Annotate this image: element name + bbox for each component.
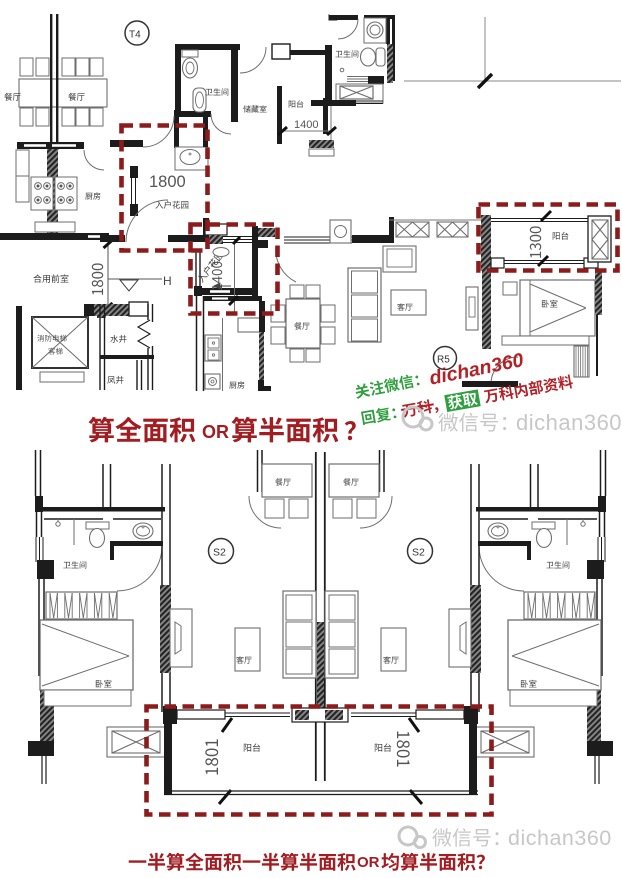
svg-text:1800: 1800	[149, 173, 186, 191]
svg-text:OR: OR	[357, 854, 380, 871]
svg-text:T4: T4	[129, 30, 141, 41]
svg-text:OR: OR	[202, 422, 229, 442]
svg-text:S2: S2	[213, 547, 226, 559]
svg-text:dichan360: dichan360	[508, 826, 612, 850]
svg-text:H: H	[163, 274, 172, 288]
svg-text:1400: 1400	[294, 119, 318, 131]
svg-text:dichan360: dichan360	[516, 410, 622, 435]
svg-text:S2: S2	[412, 547, 425, 559]
